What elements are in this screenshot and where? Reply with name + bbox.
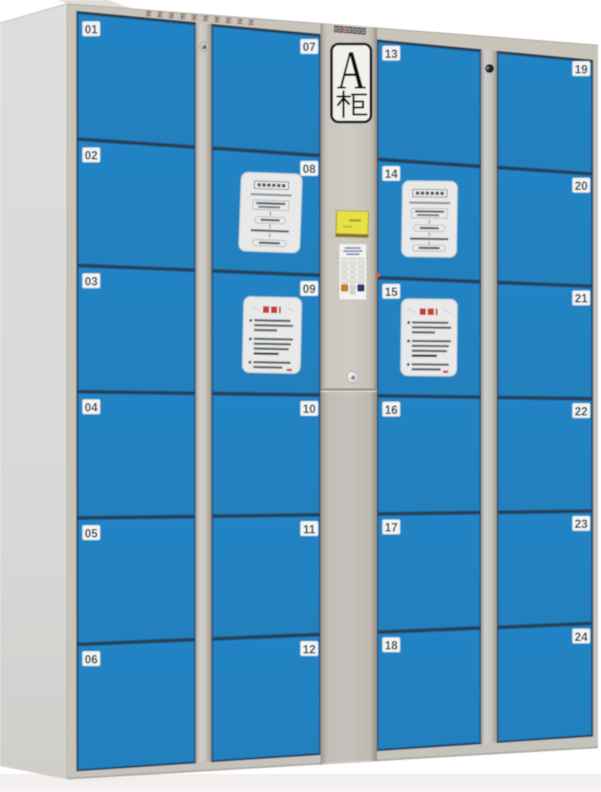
svg-text:04: 04 [85,403,98,415]
svg-text:A: A [337,41,366,101]
svg-text:20: 20 [575,181,588,193]
svg-text:01: 01 [85,25,98,37]
svg-text:10: 10 [303,404,316,416]
svg-text:24: 24 [575,632,588,644]
svg-text:23: 23 [575,519,588,531]
svg-text:21: 21 [575,294,588,306]
svg-text:09: 09 [303,284,316,296]
svg-text:11: 11 [303,524,316,536]
svg-text:13: 13 [385,49,398,61]
svg-text:14: 14 [385,169,398,181]
svg-text:17: 17 [385,523,398,535]
svg-text:05: 05 [85,528,98,540]
svg-text:02: 02 [85,151,98,163]
svg-text:19: 19 [575,64,588,76]
svg-text:08: 08 [303,164,316,176]
svg-text:07: 07 [303,42,316,54]
svg-text:03: 03 [85,277,98,289]
svg-text:15: 15 [385,287,398,299]
svg-text:16: 16 [385,405,398,417]
svg-text:12: 12 [303,644,316,656]
svg-text:06: 06 [85,654,98,666]
svg-text:18: 18 [385,641,398,653]
svg-text:22: 22 [575,406,588,418]
